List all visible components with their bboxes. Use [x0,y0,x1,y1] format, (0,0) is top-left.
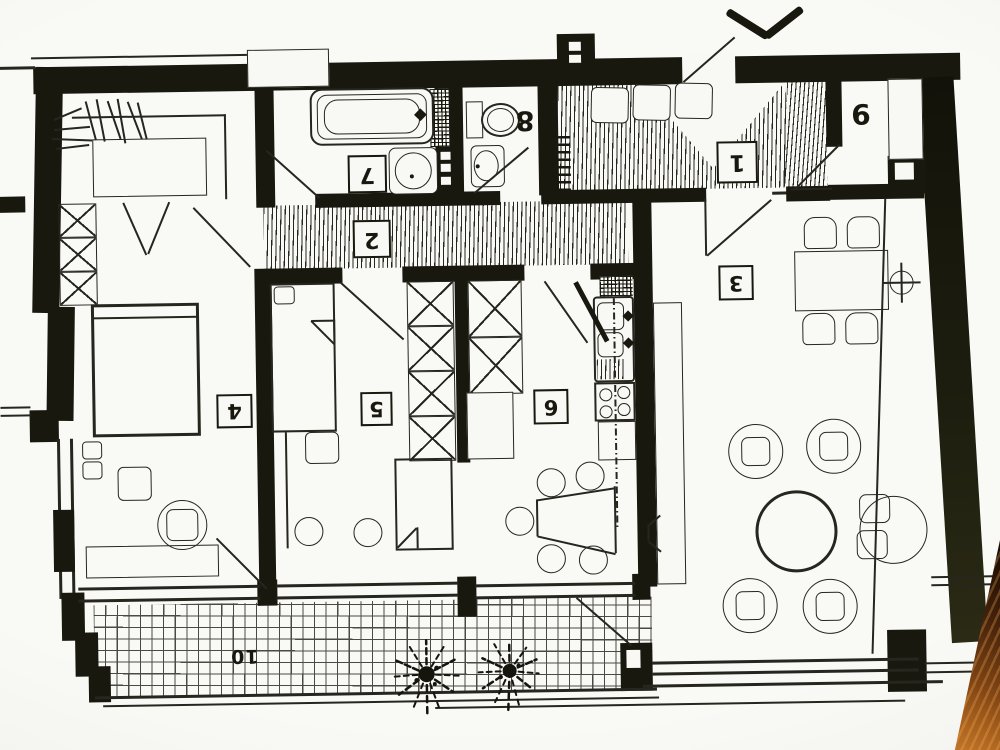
terrace-tiles [94,597,653,698]
shaft-xhatch-c [468,337,523,395]
wardrobe-nook [92,138,207,198]
glass-front-living [653,668,919,675]
door-swing [706,199,771,256]
wall-pier-left [53,510,75,572]
stool [579,545,608,574]
riser-crosshair-icon [900,263,903,303]
plant-icon [386,634,467,721]
plant-icon [474,635,545,714]
room-label-3: 3 [718,265,754,301]
door-swing [340,282,404,340]
room-label-7: 7 [348,155,388,194]
cafe-chair-seat [741,437,770,466]
shaft-xhatch-a [59,237,98,272]
wall-fixture [647,525,649,541]
bed [91,303,201,438]
wall-bath-west [254,88,275,208]
stool [537,544,566,573]
wall-segment-right [917,76,987,643]
wardrobe-nook-line [72,114,226,118]
door-swing [122,202,147,255]
entry-cabinet [674,83,713,120]
shaft-xhatch-b [408,371,456,417]
edge-fragment [1,414,31,416]
glass-front-living [653,657,919,664]
room-label-5: 5 [360,392,393,426]
radiator [547,136,571,194]
edge-fragment [0,196,25,212]
floor-plan: 1 2 3 4 5 6 7 8 9 10 [0,0,1000,750]
wardrobe-door-mark [416,527,418,548]
shelf-triangle [311,320,335,322]
bathtub-basin [324,98,421,135]
vent-square [440,152,450,160]
edge-fragment [0,406,30,408]
chevron-mark-icon [763,5,804,40]
window-band [475,582,635,588]
wall-foot [457,576,477,616]
wardrobe [394,458,453,551]
room-label-2: 2 [353,220,392,259]
dining-nook-table [536,499,539,536]
round-table [755,490,838,573]
wall-entry-living [634,188,706,203]
top-window-patch [247,49,330,88]
dining-chair [847,216,880,249]
stool [353,518,382,547]
room-label-8: 8 [510,103,541,137]
window-band [276,582,458,588]
wardrobe-nook-line [224,114,227,199]
door-leaf [704,199,707,256]
shaft-xhatch-b [407,326,455,372]
stool [536,468,565,497]
desk [86,544,219,578]
wardrobe-hatch-strip [783,80,831,188]
entry-cabinet [590,87,629,124]
entry-cabinet [632,84,671,121]
wall-step-block [29,410,58,442]
shaft-xhatch-b [407,281,455,327]
cafe-chair-seat [856,530,887,559]
nightstand [82,441,102,459]
edge-fragment [0,66,35,70]
room-label-4: 4 [216,394,253,429]
stool [575,461,604,490]
burner [617,386,630,399]
window-band [78,597,260,603]
room-label-1: 1 [716,141,758,184]
shaft-checker-kitchen [599,276,632,297]
drain-dot [410,174,414,178]
shaft-xhatch-a [59,271,98,306]
vent-square [441,177,451,185]
room-label-6: 6 [533,389,569,425]
wardrobe [887,78,923,160]
room-label-10: 10 [222,644,266,669]
pillar-notch [895,162,914,179]
chimney-flue [569,55,581,63]
window-band [78,585,260,591]
cafe-chair-seat [815,592,844,621]
cafe-chair-seat [735,591,764,620]
cafe-chair-seat [819,432,848,461]
pillow [274,286,295,304]
wall-room9-west [825,81,842,147]
corner-notch [626,650,640,668]
door-swing [193,207,251,267]
dining-chair [845,312,878,345]
photo-background: 1 2 3 4 5 6 7 8 9 10 [0,0,1000,750]
sideboard [653,302,686,584]
dining-chair [802,313,835,346]
stool [505,506,534,535]
burner [599,405,612,418]
dining-table [794,250,889,311]
desk-line [285,432,289,548]
shelf-triangle [333,320,335,345]
room-label-9: 9 [846,94,877,132]
chair-seat [166,509,198,541]
hanger-stroke [96,99,106,142]
stool [294,517,323,546]
vent-square [441,164,451,172]
corridor-hatch-floor [263,200,628,270]
drain-dot [476,164,480,168]
shaft-xhatch-b [409,416,457,462]
chimney-flue [569,42,581,51]
drainboard [597,359,624,379]
nightstand [82,461,102,479]
burner [599,388,612,401]
bed [270,283,337,433]
shaft-xhatch-c [468,280,523,338]
hanger-stroke [85,101,97,140]
nightstand [305,432,339,465]
closet-kitchen [466,392,514,460]
wall-segment-left-mid [46,307,74,421]
door-swing [147,202,170,255]
dining-chair [804,217,837,250]
cabinet [117,466,152,501]
chevron-mark-icon [725,8,770,40]
window-band [276,594,458,600]
shaft-xhatch-a [58,203,97,238]
